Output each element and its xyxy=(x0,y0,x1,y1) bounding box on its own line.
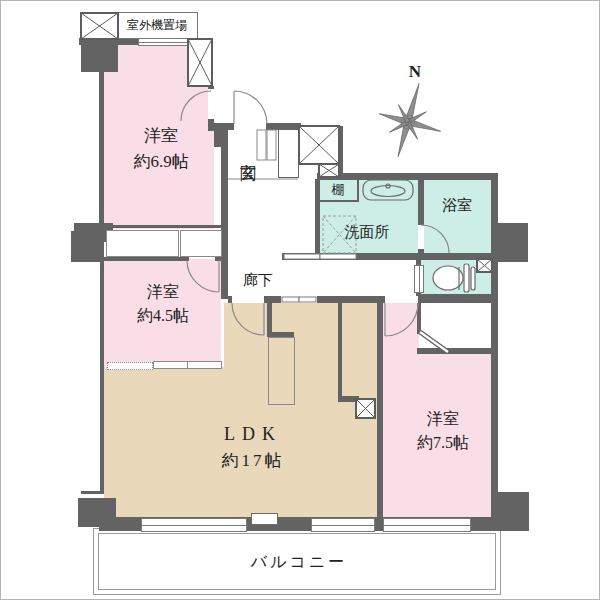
bedroom-45-label: 洋室 約4.5帖 xyxy=(137,280,189,328)
room-name: 洋室 xyxy=(133,123,188,149)
plan-vector-overlay xyxy=(1,1,599,599)
floor-plan: 室外機置場 洋室 約6.9帖 玄関 棚 洗面所 浴室 洋室 約4.5帖 廊下 L… xyxy=(0,0,600,600)
ldk-label: LDK 約17帖 xyxy=(222,421,285,474)
washroom-label: 洗面所 xyxy=(345,221,390,244)
room-name: LDK xyxy=(222,421,285,448)
hatch-pillar xyxy=(81,13,492,418)
corridor-label: 廊下 xyxy=(243,269,273,292)
angled-closet-door xyxy=(420,332,448,352)
outdoor-unit-label: 室外機置場 xyxy=(127,16,187,34)
sliding-door-panels xyxy=(282,254,356,302)
room-name: 洋室 xyxy=(417,407,469,431)
compass-north-label: N xyxy=(409,59,421,85)
bedroom-75-label: 洋室 約7.5帖 xyxy=(417,407,469,455)
room-size: 約7.5帖 xyxy=(417,431,469,455)
bathtub-icon xyxy=(363,180,413,200)
entrance-label: 玄関 xyxy=(236,150,260,156)
room-name: 洋室 xyxy=(137,280,189,304)
room-size: 約6.9帖 xyxy=(133,148,188,174)
bedroom-69-label: 洋室 約6.9帖 xyxy=(133,123,188,174)
compass-icon xyxy=(369,75,451,166)
bathroom-label: 浴室 xyxy=(442,194,472,217)
shelf-label: 棚 xyxy=(332,180,345,200)
balcony-label: バルコニー xyxy=(251,550,348,574)
room-size: 約17帖 xyxy=(222,448,285,474)
room-size: 約4.5帖 xyxy=(137,304,189,328)
toilet-icon xyxy=(433,264,475,292)
